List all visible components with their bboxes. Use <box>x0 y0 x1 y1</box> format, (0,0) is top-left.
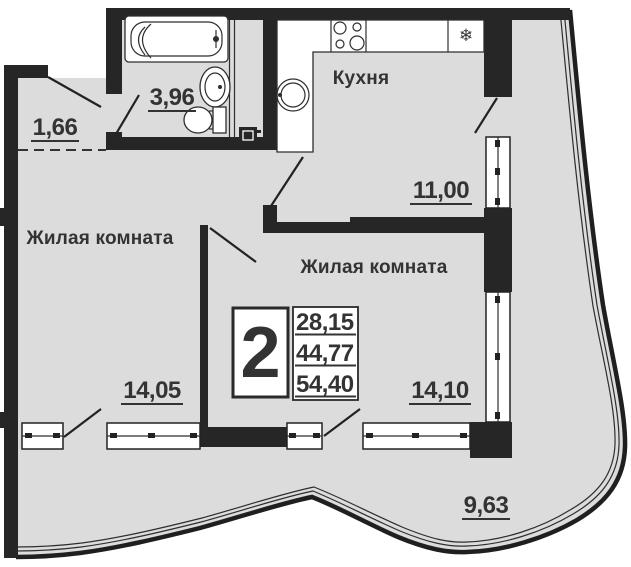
area-total: 54,40 <box>296 371 354 398</box>
window-bottom-living1 <box>107 423 200 449</box>
bathtub <box>125 16 228 62</box>
bathroom-area-label: 3,96 <box>150 84 195 111</box>
kitchen-name-label: Кухня <box>333 68 390 89</box>
kitchen-area-label: 11,00 <box>413 177 469 204</box>
living1-area-label: 14,05 <box>123 377 181 404</box>
window-right-kitchen <box>486 137 510 208</box>
area-living-total: 28,15 <box>296 309 354 336</box>
living1-name-label: Жилая комната <box>25 228 173 249</box>
floor-area <box>4 8 625 557</box>
hall-area-label: 1,66 <box>33 114 78 141</box>
fridge-snowflake-icon: ❄ <box>459 26 473 45</box>
living2-name-label: Жилая комната <box>299 257 447 278</box>
balcony-area-label: 9,63 <box>464 492 509 519</box>
floor-plan: 2 28,15 44,77 54,40 1,66 3,96 Кухня 11,0… <box>0 0 631 567</box>
floor-plan-svg: 2 28,15 44,77 54,40 1,66 3,96 Кухня 11,0… <box>0 0 631 567</box>
window-bottom-living2-left <box>287 423 322 449</box>
window-right-living2 <box>486 292 510 422</box>
area-main: 44,77 <box>296 340 354 367</box>
info-box: 2 28,15 44,77 54,40 <box>233 307 358 400</box>
window-bottom-living2-right <box>363 423 470 449</box>
living2-area-label: 14,10 <box>411 377 469 404</box>
window-bottom-left-door-side <box>22 423 63 449</box>
bathroom-sink <box>200 67 230 107</box>
rooms-count: 2 <box>240 313 280 393</box>
